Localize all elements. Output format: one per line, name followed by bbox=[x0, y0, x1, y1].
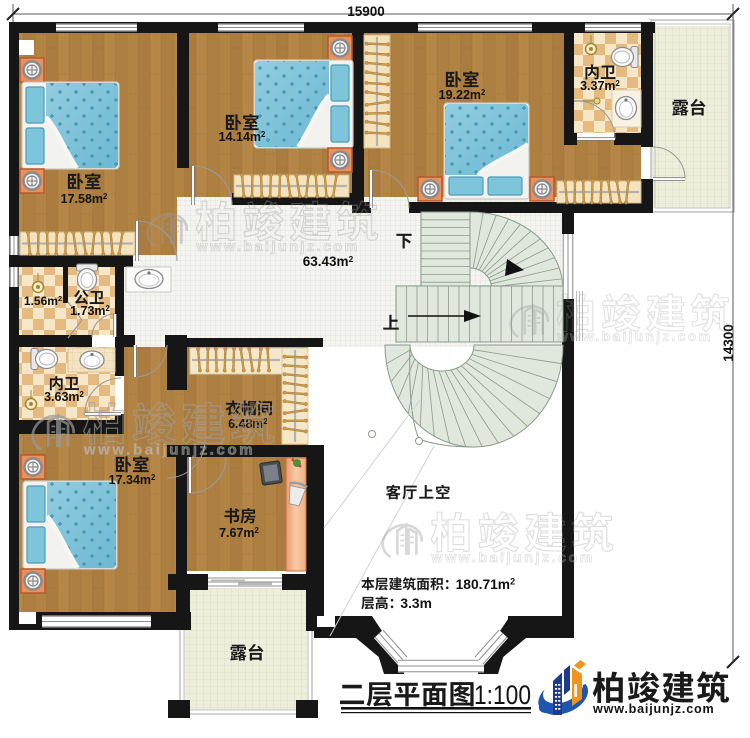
svg-text:www.baijunjz.com: www.baijunjz.com bbox=[592, 702, 715, 716]
svg-text:www.baijunjz.com: www.baijunjz.com bbox=[556, 329, 713, 344]
svg-text:1.56m2: 1.56m2 bbox=[24, 294, 62, 308]
svg-text:7.67m2: 7.67m2 bbox=[219, 526, 259, 540]
svg-text:15900: 15900 bbox=[347, 4, 385, 19]
svg-text:www.baijunjz.com: www.baijunjz.com bbox=[431, 550, 595, 566]
svg-text:3.63m2: 3.63m2 bbox=[44, 390, 84, 404]
svg-text:3.37m2: 3.37m2 bbox=[580, 79, 620, 93]
svg-text:3.3m: 3.3m bbox=[400, 596, 431, 611]
svg-text:www.baijunjz.com: www.baijunjz.com bbox=[196, 239, 360, 255]
svg-text:17.34m2: 17.34m2 bbox=[109, 473, 156, 487]
svg-text:1:100: 1:100 bbox=[474, 680, 531, 710]
svg-text:19.22m2: 19.22m2 bbox=[439, 88, 486, 102]
svg-text:180.71m2: 180.71m2 bbox=[456, 577, 515, 593]
svg-text:14.14m2: 14.14m2 bbox=[219, 130, 266, 144]
svg-text:17.58m2: 17.58m2 bbox=[61, 192, 108, 206]
svg-text:63.43m2: 63.43m2 bbox=[303, 254, 354, 269]
svg-text:1.73m2: 1.73m2 bbox=[70, 304, 110, 318]
svg-text:www.baijunjz.com: www.baijunjz.com bbox=[83, 442, 255, 459]
